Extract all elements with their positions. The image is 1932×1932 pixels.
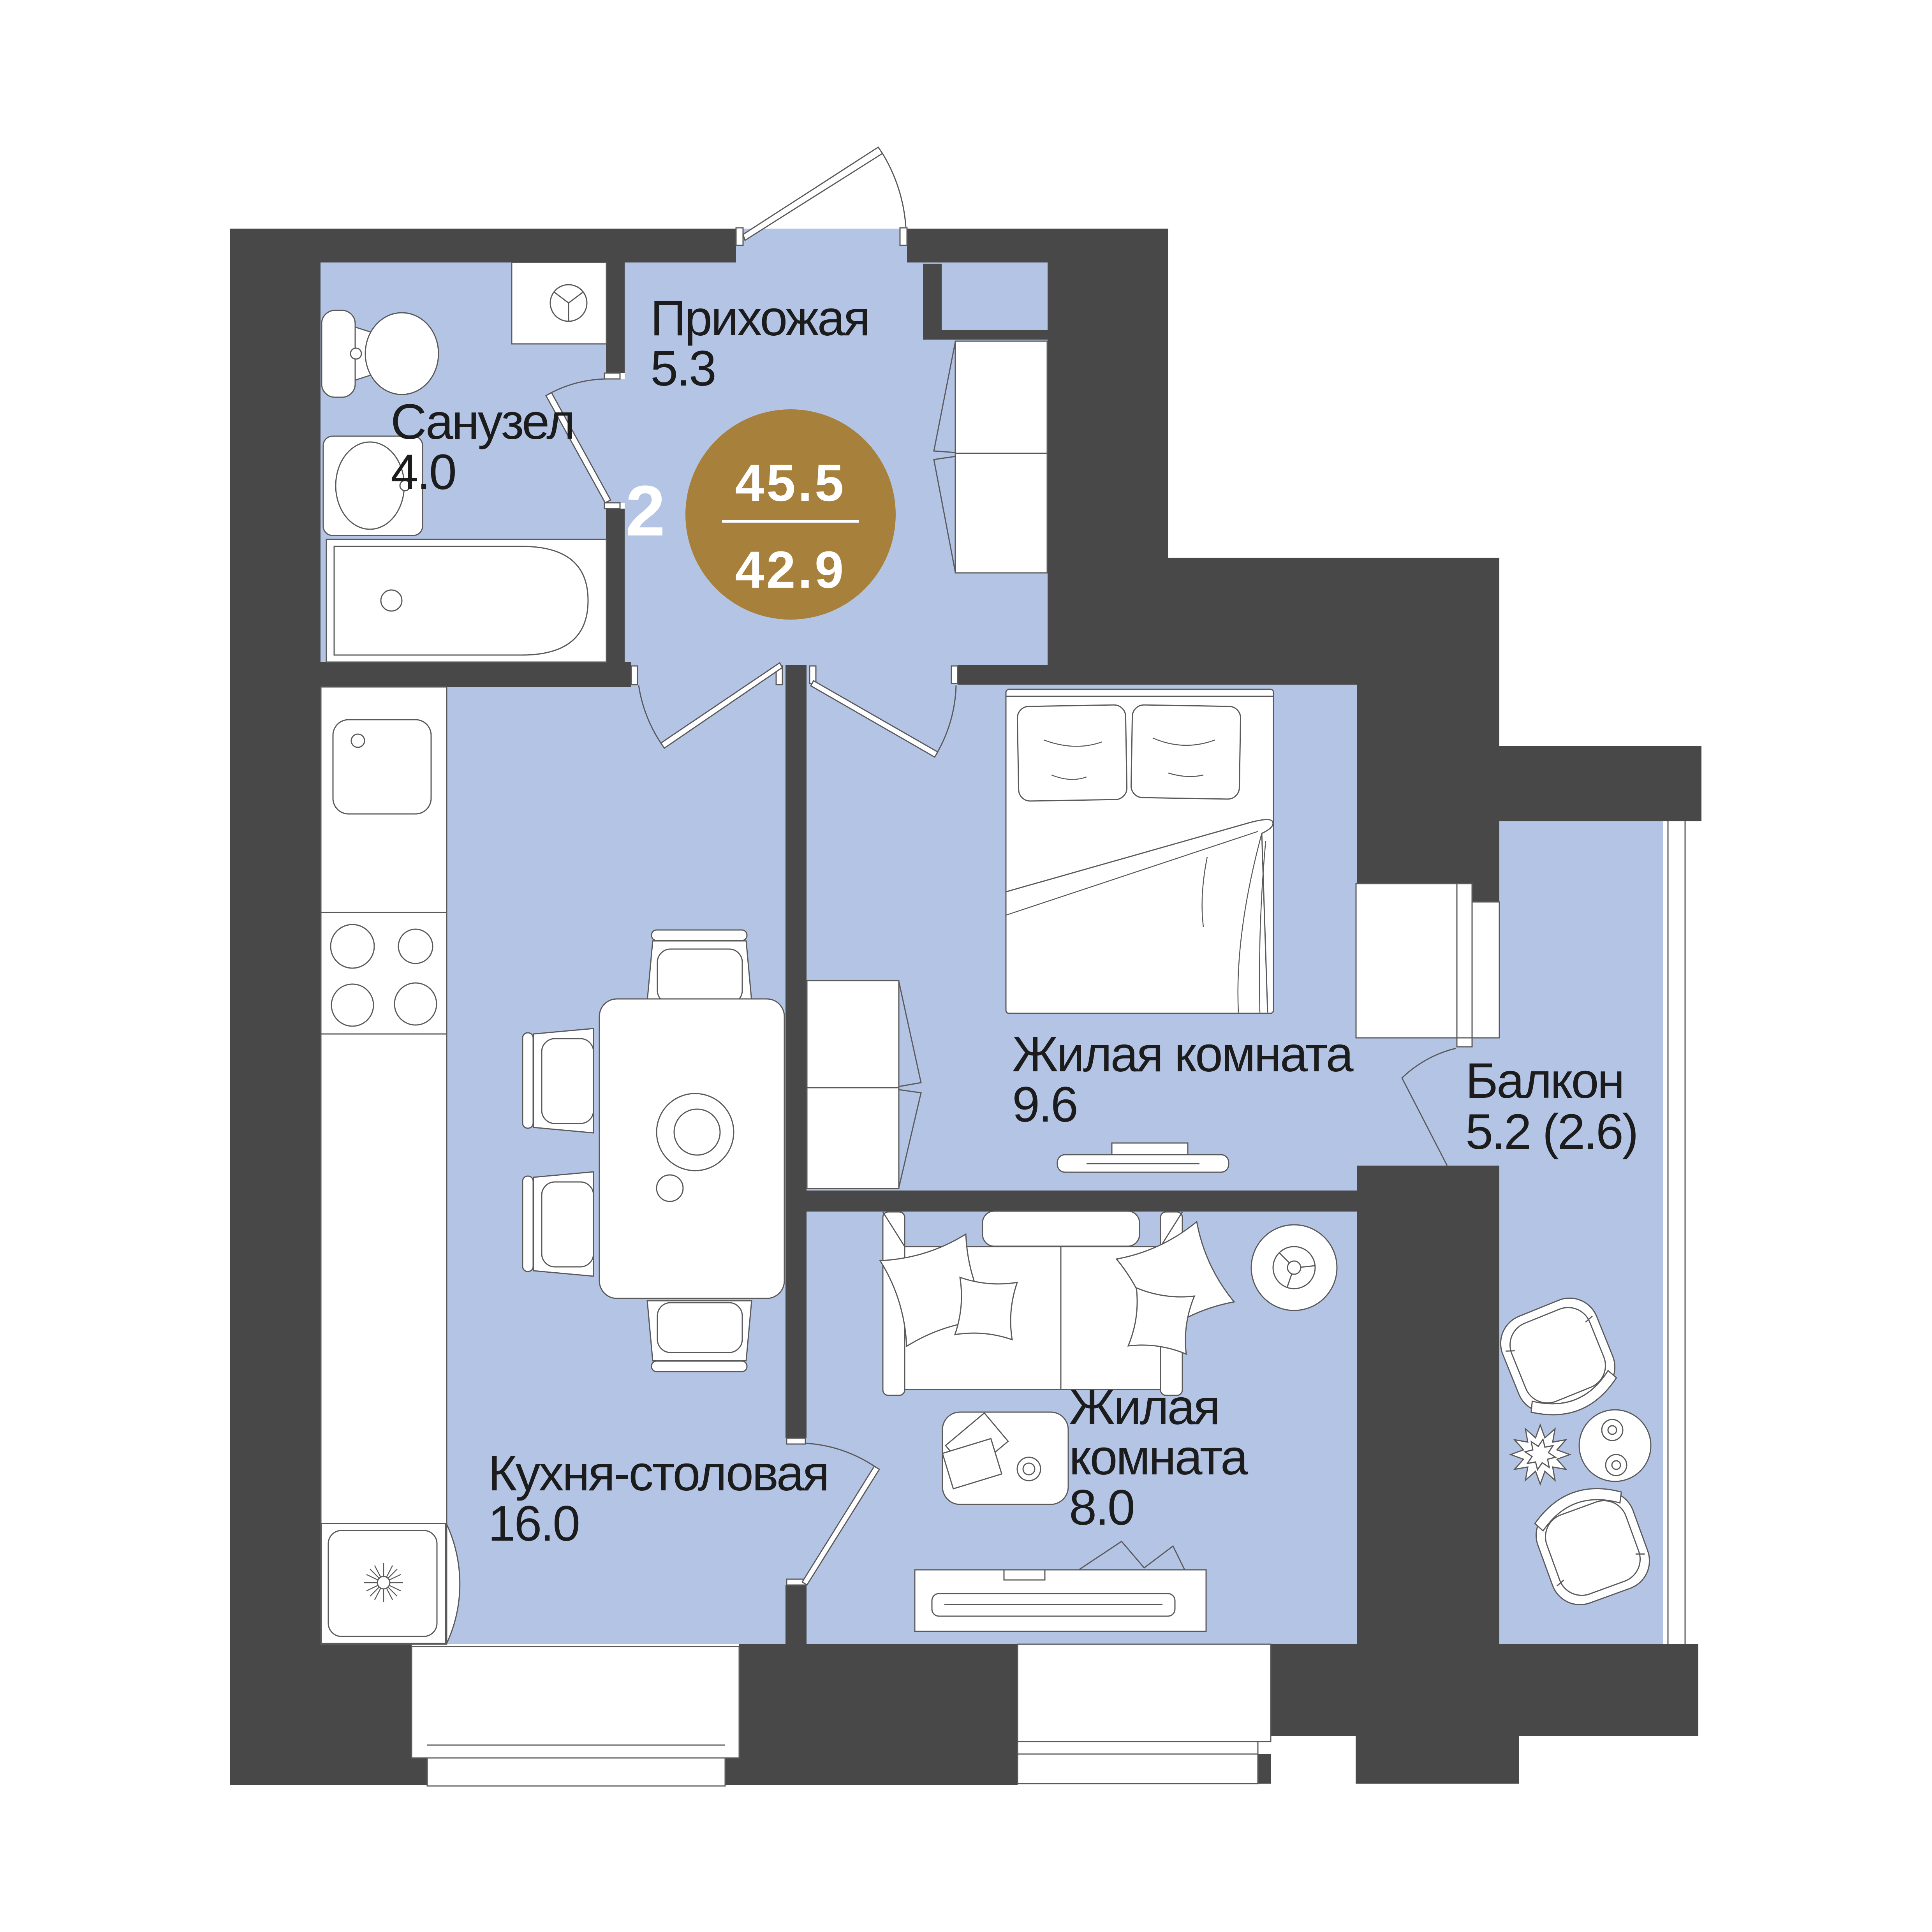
svg-text:Жилая комната: Жилая комната [1012,1027,1354,1082]
svg-text:4.0: 4.0 [391,444,455,500]
svg-text:8.0: 8.0 [1069,1480,1134,1536]
svg-text:42.9: 42.9 [735,541,846,599]
svg-text:Жилая: Жилая [1069,1379,1219,1435]
svg-text:Кухня-столовая: Кухня-столовая [488,1446,828,1501]
svg-text:2: 2 [625,470,665,551]
svg-text:5.2 (2.6): 5.2 (2.6) [1465,1104,1637,1160]
svg-text:Санузел: Санузел [391,394,574,450]
svg-text:5.3: 5.3 [650,341,715,396]
svg-text:9.6: 9.6 [1012,1077,1077,1132]
svg-text:45.5: 45.5 [735,454,846,512]
svg-text:Прихожая: Прихожая [650,291,869,346]
svg-text:16.0: 16.0 [488,1496,579,1552]
svg-text:Балкон: Балкон [1465,1053,1623,1109]
svg-text:комната: комната [1069,1430,1249,1485]
